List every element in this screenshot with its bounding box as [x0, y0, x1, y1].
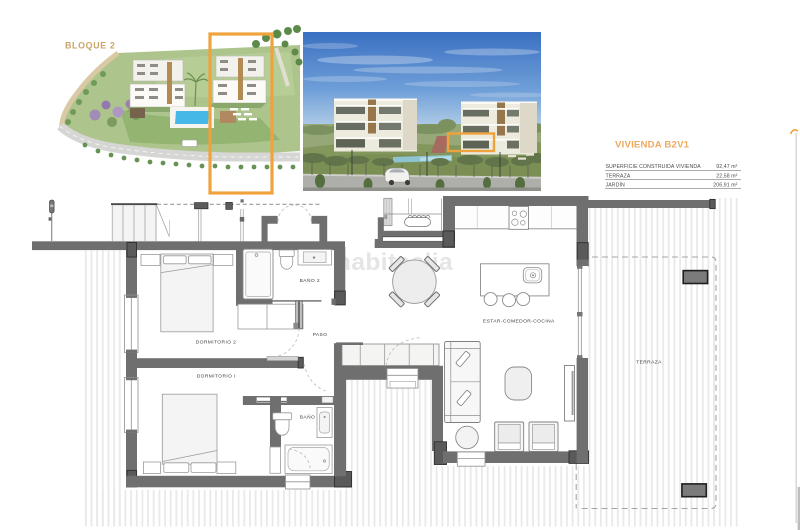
svg-text:22,58 m²: 22,58 m² — [716, 173, 737, 179]
svg-text:DORMITORIO I: DORMITORIO I — [197, 374, 236, 380]
svg-text:BAÑO: BAÑO — [300, 414, 315, 421]
svg-text:PASO: PASO — [313, 332, 328, 338]
svg-text:206,91 m²: 206,91 m² — [713, 183, 737, 189]
svg-text:JARDÍN: JARDÍN — [606, 182, 625, 189]
svg-text:DORMITORIO 2: DORMITORIO 2 — [196, 339, 237, 345]
svg-text:VIVIENDA B2V1: VIVIENDA B2V1 — [615, 139, 690, 150]
svg-text:BAÑO 2: BAÑO 2 — [300, 277, 320, 284]
svg-text:TERRAZA: TERRAZA — [636, 360, 662, 366]
svg-text:TERRAZA: TERRAZA — [606, 173, 631, 179]
svg-text:ESTAR-COMEDOR-COCINA: ESTAR-COMEDOR-COCINA — [483, 319, 555, 325]
svg-text:SUPERFICIE CONSTRUIDA VIVIENDA: SUPERFICIE CONSTRUIDA VIVIENDA — [606, 164, 702, 170]
svg-text:92,47 m²: 92,47 m² — [716, 164, 737, 170]
svg-text:BLOQUE 2: BLOQUE 2 — [65, 41, 116, 51]
